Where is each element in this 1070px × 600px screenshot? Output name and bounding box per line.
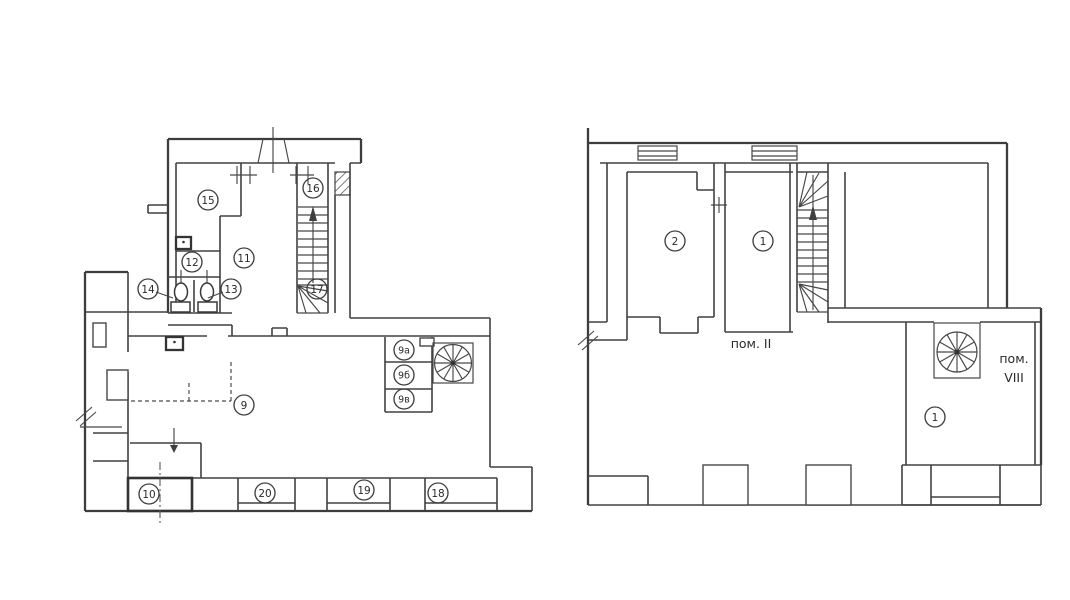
window-symbol [638, 146, 677, 160]
column-pier [703, 465, 748, 505]
area-label-pom-viii-line1: пом. [999, 351, 1028, 366]
room-label-9a: 9а [394, 340, 414, 360]
stair-post [420, 338, 434, 346]
room-label-1-lower: 1 [925, 407, 945, 427]
room-label-2: 2 [665, 231, 685, 251]
svg-text:2: 2 [672, 236, 679, 248]
room-label-18: 18 [428, 483, 448, 503]
svg-text:18: 18 [431, 488, 444, 500]
room-label-20: 20 [255, 483, 275, 503]
svg-text:10: 10 [142, 489, 155, 501]
chimney-symbol [258, 127, 289, 173]
room-label-11: 11 [234, 248, 254, 268]
wall-pier [93, 323, 106, 347]
svg-text:9: 9 [241, 400, 248, 412]
room-label-17: 17 [307, 279, 327, 299]
svg-text:9а: 9а [398, 346, 410, 357]
toilet-icon [198, 283, 217, 312]
column-pier [806, 465, 851, 505]
sink-icon [166, 337, 183, 350]
room-label-9b: 9б [394, 365, 414, 385]
winder-stair-icon [797, 172, 828, 312]
floor-plan-drawing: 15 16 11 12 14 13 17 9 9а 9б 9в 10 20 19… [0, 0, 1070, 600]
room-label-1-upper: 1 [753, 231, 773, 251]
svg-text:12: 12 [185, 257, 198, 269]
toilet-icon [171, 283, 190, 312]
svg-text:9в: 9в [398, 395, 410, 406]
area-label-pom-viii-line2: VIII [1004, 370, 1024, 385]
spiral-stair-icon [433, 343, 473, 383]
svg-text:1: 1 [760, 236, 767, 248]
spiral-stair-icon [934, 323, 980, 378]
svg-text:16: 16 [306, 183, 320, 195]
hatch-block [335, 172, 350, 195]
svg-text:15: 15 [201, 195, 214, 207]
svg-text:13: 13 [224, 284, 237, 296]
svg-text:11: 11 [237, 253, 250, 265]
svg-text:14: 14 [141, 284, 155, 296]
left-plan: 15 16 11 12 14 13 17 9 9а 9б 9в 10 20 19… [76, 127, 532, 524]
svg-text:17: 17 [310, 284, 323, 296]
up-arrow-head [309, 206, 317, 221]
sink-icon [176, 237, 191, 249]
floor-plan-page: 15 16 11 12 14 13 17 9 9а 9б 9в 10 20 19… [0, 0, 1070, 600]
area-label-pom-ii: пом. II [731, 336, 772, 351]
column-pier [588, 476, 648, 505]
room-label-19: 19 [354, 480, 374, 500]
room-label-16: 16 [303, 178, 323, 198]
right-plan: 2 1 1 пом. II пом. VIII [578, 128, 1041, 505]
svg-text:20: 20 [258, 488, 271, 500]
room-label-9: 9 [234, 395, 254, 415]
room-label-14: 14 [138, 279, 158, 299]
room-label-9v: 9в [394, 389, 414, 409]
room-label-12: 12 [182, 252, 202, 272]
down-arrow-icon [170, 428, 178, 453]
room-label-15: 15 [198, 190, 218, 210]
svg-text:9б: 9б [398, 371, 410, 382]
room-label-13: 13 [221, 279, 241, 299]
svg-text:1: 1 [932, 412, 939, 424]
room-label-10: 10 [139, 484, 159, 504]
up-arrow-head [809, 205, 817, 220]
window-symbol [752, 146, 797, 160]
wall-pier [107, 370, 128, 400]
dashed-partition [131, 361, 231, 401]
svg-text:19: 19 [357, 485, 370, 497]
